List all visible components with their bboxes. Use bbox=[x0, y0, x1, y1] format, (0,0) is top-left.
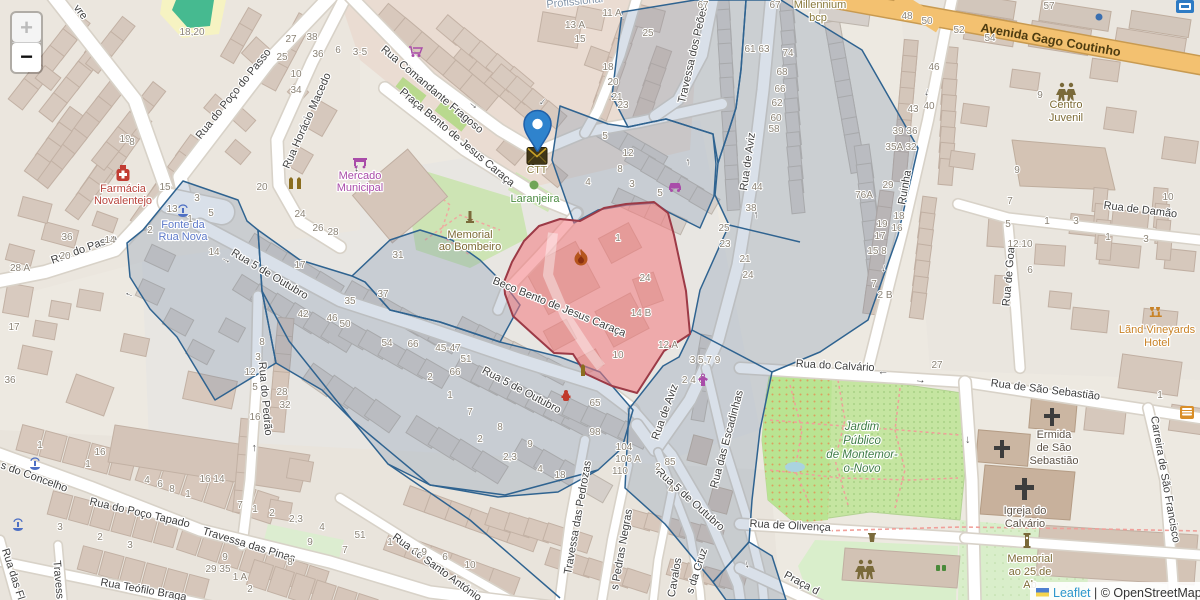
svg-text:24: 24 bbox=[294, 209, 306, 220]
svg-text:18: 18 bbox=[554, 470, 566, 481]
svg-text:61 63: 61 63 bbox=[744, 44, 769, 55]
svg-text:52: 52 bbox=[953, 25, 965, 36]
svg-text:8: 8 bbox=[169, 484, 175, 495]
svg-text:7,9: 7,9 bbox=[413, 547, 427, 558]
svg-text:1: 1 bbox=[447, 390, 453, 401]
svg-text:8: 8 bbox=[497, 422, 503, 433]
svg-text:25: 25 bbox=[718, 223, 730, 234]
svg-text:16: 16 bbox=[249, 412, 261, 423]
svg-text:28: 28 bbox=[327, 227, 339, 238]
svg-text:17: 17 bbox=[8, 322, 20, 333]
svg-text:de São: de São bbox=[1037, 442, 1072, 454]
svg-text:CTT: CTT bbox=[527, 164, 548, 176]
svg-text:54: 54 bbox=[984, 33, 996, 44]
svg-text:1 A: 1 A bbox=[233, 572, 248, 583]
svg-text:38: 38 bbox=[306, 32, 318, 43]
svg-text:11 A: 11 A bbox=[602, 8, 622, 19]
svg-text:7: 7 bbox=[237, 500, 243, 511]
svg-text:12 A: 12 A bbox=[658, 340, 678, 351]
svg-text:| © OpenStreetMap: | © OpenStreetMap bbox=[1094, 586, 1200, 600]
svg-text:48: 48 bbox=[901, 11, 913, 22]
svg-text:24: 24 bbox=[742, 270, 754, 281]
svg-text:6: 6 bbox=[442, 552, 448, 563]
svg-text:3: 3 bbox=[127, 540, 133, 551]
svg-text:13 A: 13 A bbox=[565, 20, 585, 31]
svg-text:Millennium: Millennium bbox=[794, 0, 847, 11]
svg-text:8: 8 bbox=[287, 557, 293, 568]
svg-text:26: 26 bbox=[312, 223, 324, 234]
svg-text:12: 12 bbox=[622, 148, 634, 159]
svg-text:39 36: 39 36 bbox=[892, 126, 917, 137]
svg-text:66: 66 bbox=[407, 339, 419, 350]
svg-text:Memorial: Memorial bbox=[447, 229, 492, 241]
svg-text:+: + bbox=[20, 15, 33, 40]
svg-text:4: 4 bbox=[585, 177, 591, 188]
svg-text:66: 66 bbox=[774, 84, 786, 95]
svg-text:43: 43 bbox=[907, 104, 919, 115]
svg-text:51: 51 bbox=[460, 354, 472, 365]
svg-text:→: → bbox=[914, 373, 926, 386]
svg-text:−: − bbox=[20, 44, 33, 69]
svg-text:35A 32: 35A 32 bbox=[885, 142, 917, 153]
svg-text:de Montemor-: de Montemor- bbox=[826, 449, 898, 461]
svg-text:27: 27 bbox=[285, 34, 297, 45]
svg-text:9: 9 bbox=[307, 537, 313, 548]
svg-text:Sebastião: Sebastião bbox=[1030, 455, 1079, 467]
svg-text:12:10: 12:10 bbox=[1007, 239, 1032, 250]
svg-text:6: 6 bbox=[1027, 265, 1033, 276]
svg-text:18: 18 bbox=[602, 62, 614, 73]
svg-text:7: 7 bbox=[342, 545, 348, 556]
svg-text:76A: 76A bbox=[855, 190, 873, 201]
svg-text:1: 1 bbox=[185, 489, 191, 500]
svg-text:3: 3 bbox=[629, 179, 635, 190]
svg-text:→: → bbox=[963, 435, 975, 446]
svg-text:2,3: 2,3 bbox=[289, 514, 303, 525]
svg-text:60: 60 bbox=[770, 113, 782, 124]
svg-text:18,20: 18,20 bbox=[179, 27, 204, 38]
svg-text:1: 1 bbox=[1157, 390, 1163, 401]
svg-text:66: 66 bbox=[449, 367, 461, 378]
svg-text:28: 28 bbox=[276, 387, 288, 398]
svg-text:3: 3 bbox=[1073, 216, 1079, 227]
svg-text:bcp: bcp bbox=[809, 12, 827, 24]
svg-text:14: 14 bbox=[208, 247, 220, 258]
svg-text:18: 18 bbox=[893, 211, 905, 222]
svg-text:3·5: 3·5 bbox=[353, 47, 368, 58]
svg-text:→: → bbox=[680, 156, 694, 169]
svg-text:9: 9 bbox=[222, 552, 228, 563]
svg-text:Rua Nova: Rua Nova bbox=[159, 231, 209, 243]
svg-text:3: 3 bbox=[255, 352, 261, 363]
svg-text:35: 35 bbox=[344, 296, 356, 307]
svg-text:5: 5 bbox=[1005, 219, 1011, 230]
svg-text:8: 8 bbox=[259, 337, 265, 348]
svg-text:24: 24 bbox=[639, 273, 651, 284]
svg-text:15 8: 15 8 bbox=[867, 246, 887, 257]
svg-text:23: 23 bbox=[617, 100, 629, 111]
svg-text:Lãnd Vineyards: Lãnd Vineyards bbox=[1119, 324, 1196, 336]
svg-text:74: 74 bbox=[782, 48, 794, 59]
svg-text:Fonte da: Fonte da bbox=[161, 219, 205, 231]
svg-text:20: 20 bbox=[607, 77, 619, 88]
svg-text:10: 10 bbox=[1162, 192, 1174, 203]
svg-text:27: 27 bbox=[931, 360, 943, 371]
svg-text:19: 19 bbox=[876, 219, 888, 230]
svg-text:9: 9 bbox=[1037, 90, 1043, 101]
svg-text:Hotel: Hotel bbox=[1144, 337, 1170, 349]
svg-text:5: 5 bbox=[602, 131, 608, 142]
svg-text:5: 5 bbox=[208, 208, 214, 219]
svg-text:67: 67 bbox=[697, 0, 709, 11]
svg-text:50: 50 bbox=[921, 16, 933, 27]
svg-text:7: 7 bbox=[1007, 196, 1013, 207]
svg-text:3: 3 bbox=[1143, 234, 1149, 245]
svg-text:54: 54 bbox=[381, 338, 393, 349]
svg-text:106 A: 106 A bbox=[615, 454, 641, 465]
svg-text:→: → bbox=[247, 443, 259, 454]
svg-text:25: 25 bbox=[276, 52, 288, 63]
svg-text:10: 10 bbox=[290, 69, 302, 80]
svg-text:3: 3 bbox=[194, 193, 200, 204]
svg-text:25: 25 bbox=[642, 28, 654, 39]
svg-text:2: 2 bbox=[655, 462, 661, 473]
svg-text:21: 21 bbox=[739, 254, 751, 265]
svg-text:42: 42 bbox=[297, 309, 309, 320]
svg-text:2 B: 2 B bbox=[877, 290, 892, 301]
svg-text:65: 65 bbox=[589, 398, 601, 409]
svg-text:9: 9 bbox=[527, 439, 533, 450]
svg-text:46: 46 bbox=[326, 313, 338, 324]
svg-text:2,3: 2,3 bbox=[503, 452, 517, 463]
svg-text:12: 12 bbox=[244, 367, 256, 378]
svg-text:Igreja do: Igreja do bbox=[1004, 505, 1047, 517]
svg-text:34: 34 bbox=[290, 85, 302, 96]
svg-text:1: 1 bbox=[615, 233, 621, 244]
svg-text:15: 15 bbox=[159, 182, 171, 193]
svg-text:46: 46 bbox=[928, 62, 940, 73]
svg-text:1: 1 bbox=[252, 504, 258, 515]
svg-text:7: 7 bbox=[871, 279, 877, 290]
svg-text:44: 44 bbox=[751, 182, 763, 193]
svg-text:36: 36 bbox=[61, 232, 73, 243]
svg-text:Centro: Centro bbox=[1049, 99, 1082, 111]
svg-text:104: 104 bbox=[616, 442, 633, 453]
svg-text:32: 32 bbox=[279, 400, 291, 411]
svg-text:Calvário: Calvário bbox=[1005, 518, 1045, 530]
svg-text:→: → bbox=[878, 368, 889, 380]
svg-text:Juvenil: Juvenil bbox=[1049, 112, 1083, 124]
svg-text:98: 98 bbox=[589, 427, 601, 438]
svg-text:16: 16 bbox=[94, 447, 106, 458]
svg-text:Mercado: Mercado bbox=[339, 170, 382, 182]
svg-text:1: 1 bbox=[387, 537, 393, 548]
svg-text:7: 7 bbox=[467, 407, 473, 418]
svg-text:13: 13 bbox=[166, 204, 178, 215]
svg-text:6: 6 bbox=[335, 45, 341, 56]
svg-text:38: 38 bbox=[745, 203, 757, 214]
svg-text:Ermida: Ermida bbox=[1037, 429, 1073, 441]
svg-text:1: 1 bbox=[85, 459, 91, 470]
svg-text:2: 2 bbox=[247, 584, 253, 595]
svg-text:20: 20 bbox=[256, 182, 268, 193]
svg-text:8: 8 bbox=[617, 164, 623, 175]
svg-text:10: 10 bbox=[612, 350, 624, 361]
svg-text:2: 2 bbox=[97, 532, 103, 543]
svg-text:17: 17 bbox=[874, 231, 886, 242]
svg-text:Laranjeira: Laranjeira bbox=[511, 193, 561, 205]
svg-text:29: 29 bbox=[882, 180, 894, 191]
svg-text:50: 50 bbox=[339, 319, 351, 330]
svg-text:8: 8 bbox=[129, 137, 135, 148]
svg-text:68: 68 bbox=[776, 67, 788, 78]
svg-text:14: 14 bbox=[104, 235, 116, 246]
svg-text:29 35: 29 35 bbox=[205, 564, 230, 575]
svg-text:4: 4 bbox=[668, 484, 674, 495]
svg-text:Memorial: Memorial bbox=[1007, 553, 1052, 565]
svg-text:45-47: 45-47 bbox=[435, 343, 461, 354]
svg-text:4: 4 bbox=[537, 464, 543, 475]
svg-text:1: 1 bbox=[1105, 232, 1111, 243]
svg-text:4: 4 bbox=[144, 475, 150, 486]
svg-text:→: → bbox=[878, 262, 892, 275]
svg-text:Leaflet: Leaflet bbox=[1053, 586, 1091, 600]
svg-text:2: 2 bbox=[269, 508, 275, 519]
svg-text:1: 1 bbox=[1044, 216, 1050, 227]
svg-text:3 5,7 9: 3 5,7 9 bbox=[690, 355, 721, 366]
svg-text:31: 31 bbox=[392, 250, 404, 261]
svg-text:6: 6 bbox=[157, 479, 163, 490]
svg-text:37: 37 bbox=[377, 289, 389, 300]
svg-text:17: 17 bbox=[294, 260, 306, 271]
svg-text:58: 58 bbox=[768, 124, 780, 135]
svg-text:2: 2 bbox=[477, 434, 483, 445]
svg-text:5: 5 bbox=[252, 382, 258, 393]
svg-text:14 B: 14 B bbox=[631, 308, 652, 319]
svg-text:36: 36 bbox=[312, 49, 324, 60]
svg-text:Novalentejo: Novalentejo bbox=[94, 195, 152, 207]
svg-text:5: 5 bbox=[657, 188, 663, 199]
svg-text:2: 2 bbox=[147, 225, 153, 236]
svg-text:85: 85 bbox=[664, 457, 676, 468]
svg-text:o-Novo: o-Novo bbox=[843, 463, 881, 475]
svg-text:36: 36 bbox=[4, 375, 16, 386]
svg-text:110: 110 bbox=[612, 466, 628, 477]
svg-text:Municipal: Municipal bbox=[337, 182, 383, 194]
svg-text:16: 16 bbox=[891, 223, 903, 234]
svg-text:57: 57 bbox=[1043, 1, 1055, 12]
svg-text:Público: Público bbox=[843, 435, 881, 447]
svg-text:ao Bombeiro: ao Bombeiro bbox=[439, 241, 501, 253]
svg-text:15: 15 bbox=[574, 34, 586, 45]
svg-text:51: 51 bbox=[354, 530, 366, 541]
svg-text:2: 2 bbox=[427, 372, 433, 383]
svg-text:40: 40 bbox=[923, 101, 935, 112]
svg-text:Farmácia: Farmácia bbox=[100, 183, 147, 195]
svg-text:ao 25 de: ao 25 de bbox=[1009, 566, 1052, 578]
svg-text:9: 9 bbox=[1014, 165, 1020, 176]
svg-text:10: 10 bbox=[464, 560, 476, 571]
svg-text:16 14: 16 14 bbox=[199, 474, 224, 485]
svg-text:28 A: 28 A bbox=[10, 263, 30, 274]
svg-text:62: 62 bbox=[771, 98, 783, 109]
svg-text:4: 4 bbox=[319, 522, 325, 533]
svg-text:23: 23 bbox=[719, 239, 731, 250]
svg-text:20: 20 bbox=[59, 251, 71, 262]
svg-text:→: → bbox=[921, 86, 935, 99]
svg-text:67: 67 bbox=[769, 0, 781, 11]
svg-text:3: 3 bbox=[57, 522, 63, 533]
svg-text:Jardim: Jardim bbox=[844, 421, 880, 433]
